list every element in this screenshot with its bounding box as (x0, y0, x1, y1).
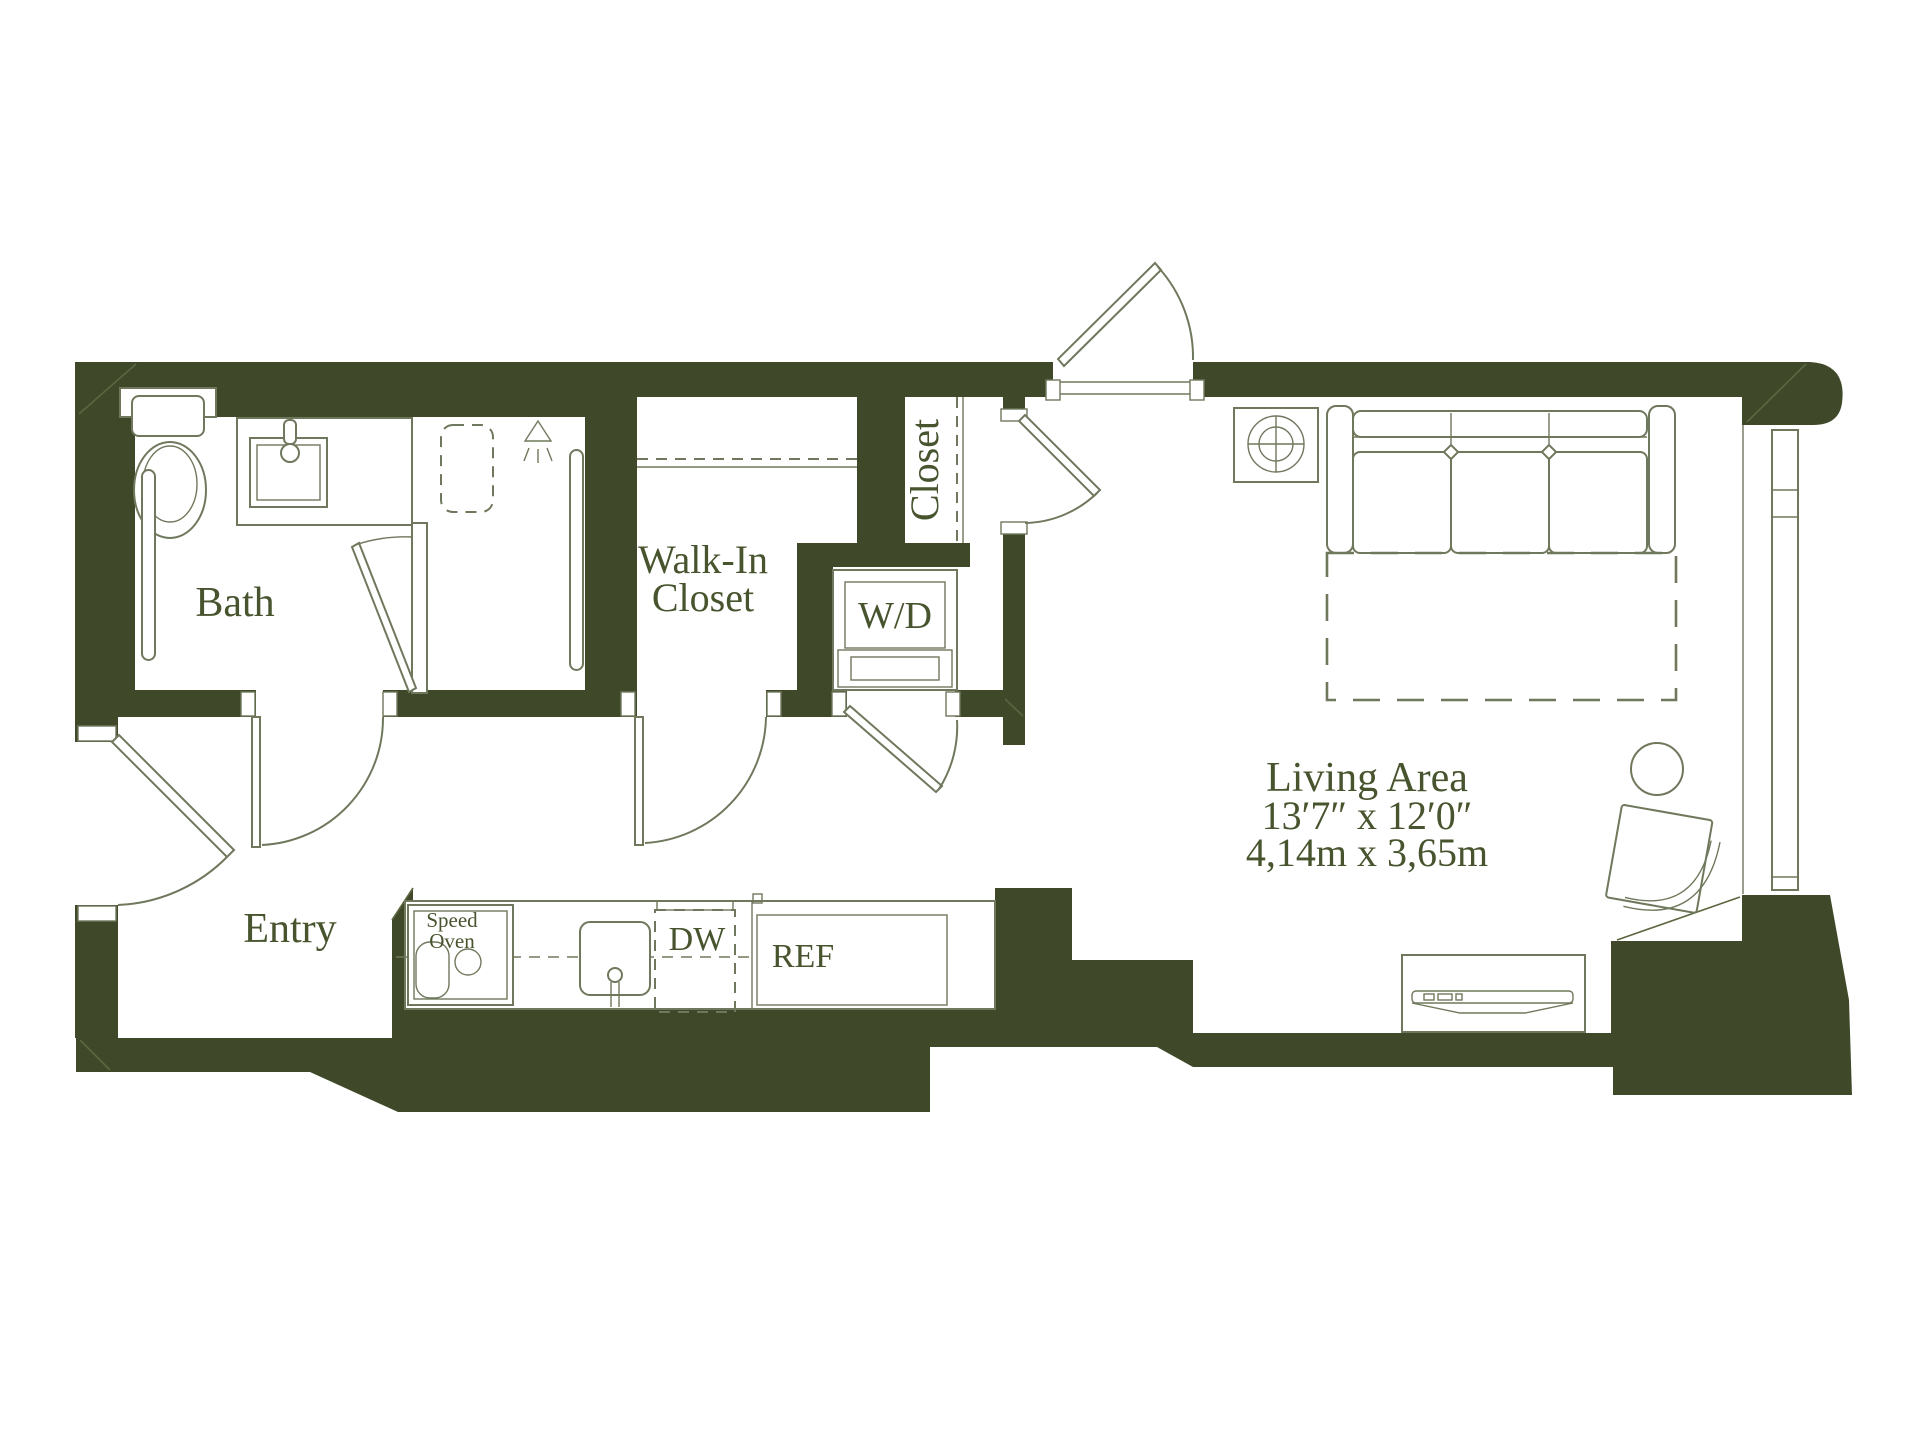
tv-console-icon (1402, 955, 1585, 1032)
jamb-wd-right (946, 692, 960, 716)
label-refrigerator: REF (772, 938, 834, 975)
living-furniture (1234, 406, 1723, 1032)
sofa-icon (1327, 406, 1675, 553)
jamb-frontdoor-left (1046, 380, 1060, 400)
jamb-bath-left (241, 692, 255, 716)
washer-dryer-door (844, 706, 957, 792)
grab-bar-icon (142, 470, 155, 660)
wall-left-stub (75, 905, 118, 1038)
window-right (1743, 425, 1798, 894)
label-dishwasher: DW (669, 921, 727, 958)
sofa-bed-extent (1327, 553, 1676, 700)
jamb-frontdoor-right (1190, 380, 1204, 400)
label-living-dims-metric: 4,14m x 3,65m (1246, 830, 1488, 875)
bathroom-fixtures (120, 388, 583, 670)
wall-wic-closet (857, 397, 905, 543)
front-door (1058, 263, 1193, 394)
shower-head-icon (524, 421, 552, 463)
jamb-wic-right (767, 692, 781, 716)
grab-bar-icon (570, 450, 583, 670)
wall-bath-south-west (118, 690, 256, 717)
wall-wd-top (797, 543, 970, 567)
wall-vestibule-stub-bottom (1003, 527, 1025, 745)
label-walk-in-closet-line2: Closet (652, 575, 754, 620)
label-speed-oven-line2: Oven (429, 929, 475, 953)
jamb-closet-bottom (1001, 522, 1027, 534)
side-table-icon (1234, 408, 1318, 482)
closet-door (1019, 415, 1100, 523)
wall-shower-wic (585, 397, 637, 690)
bath-door (252, 717, 383, 847)
shower-door (352, 523, 427, 693)
floor-plan-canvas: Bath Entry Walk-In Closet Closet W/D Spe… (0, 0, 1920, 1440)
window-frame (1772, 430, 1798, 890)
label-closet: Closet (902, 419, 947, 521)
jamb-entry-top (78, 726, 116, 741)
sink-vanity-icon (237, 418, 412, 525)
wall-wd-left (797, 567, 833, 690)
wall-bath-south-east (383, 690, 637, 717)
round-table-icon (1631, 743, 1683, 795)
armchair-icon (1605, 805, 1724, 922)
label-washer-dryer: W/D (858, 595, 932, 637)
kitchen-sink-icon (580, 922, 650, 1007)
floor-plan: Bath Entry Walk-In Closet Closet W/D Spe… (0, 0, 1920, 1440)
shower-glass-panel (412, 523, 427, 693)
walk-in-closet-door (635, 717, 766, 845)
jamb-bath-right (383, 692, 397, 716)
jamb-entry-bottom (78, 906, 116, 921)
wall-top-left (75, 362, 1053, 417)
jamb-wic-left (621, 692, 635, 716)
entry-door (112, 735, 234, 905)
label-entry: Entry (243, 906, 336, 952)
label-bath: Bath (195, 580, 274, 626)
shower-bench-icon (441, 425, 493, 512)
